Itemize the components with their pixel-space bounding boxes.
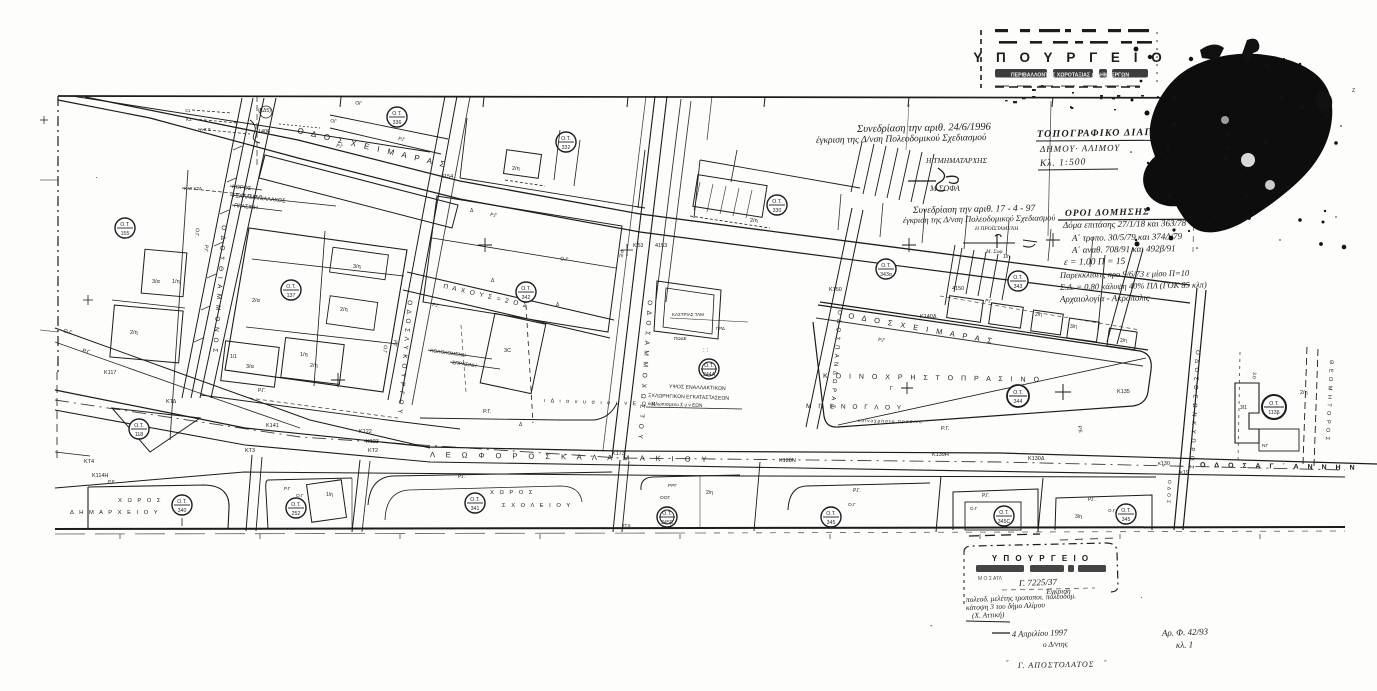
svg-text:Ξ1: Ξ1 [185,108,191,113]
svg-text:ΚΙ53: ΚΙ53 [633,243,644,249]
svg-text:ΚΑΣΤΡΙΑΣ ΤΛΜ: ΚΑΣΤΡΙΑΣ ΤΛΜ [672,312,704,317]
svg-text:Ο.Τ.: Ο.Τ. [134,423,144,429]
svg-text:Ο.Τ.: Ο.Τ. [1269,401,1279,407]
svg-text:: :: : : [703,348,708,354]
svg-text:336: 336 [393,120,402,126]
svg-text:344Α: 344Α [703,372,716,378]
svg-text:2/η: 2/η [340,307,348,313]
svg-text:Ο.Γ: Ο.Γ [1108,508,1116,513]
svg-text:Ο.Γ.: Ο.Γ. [193,228,200,237]
svg-text:2/η: 2/η [706,490,713,496]
svg-text:Ρ.Γ: Ρ.Γ [284,486,291,492]
svg-text:Ο.Τ.: Ο.Τ. [521,286,531,292]
svg-text:4 Απριλίου 1997: 4 Απριλίου 1997 [1012,627,1068,639]
svg-text:332: 332 [562,145,571,151]
svg-text:1/η: 1/η [172,279,180,285]
svg-text:Ο.Τ.: Ο.Τ. [704,363,714,369]
svg-text:Κ150: Κ150 [829,287,842,293]
svg-text:Δ Η Μ Α Ρ Χ Ε Ι Ο Υ: Δ Η Μ Α Ρ Χ Ε Ι Ο Υ [70,510,160,516]
svg-text:Ρ.Γ.: Ρ.Γ. [202,245,209,253]
svg-text:Κ173: Κ173 [612,451,625,457]
svg-text:Αρ. Φ. 42/93: Αρ. Φ. 42/93 [1161,626,1209,638]
svg-text:ο Δ/ντης: ο Δ/ντης [1043,639,1069,649]
svg-text:345β: 345β [661,520,673,526]
svg-text:1/η: 1/η [300,352,308,358]
svg-text:Ο.Τ.: Ο.Τ. [1013,390,1023,396]
svg-text:137: 137 [287,293,296,299]
svg-text:(Χ. Αττική): (Χ. Αττική) [972,610,1005,620]
svg-text:ΚΑΤ ΚΤΛ: ΚΑΤ ΚΤΛ [184,186,202,191]
svg-text:ΝΓ: ΝΓ [1262,443,1268,449]
svg-text:1/η: 1/η [1003,254,1010,260]
svg-text:Ο Δ Ο Σ: Ο Δ Ο Σ [1165,480,1172,504]
svg-text:Ρ.Γ.: Ρ.Γ. [853,488,861,494]
svg-text:Ρ.Γ: Ρ.Γ [490,212,498,219]
svg-text:3/α: 3/α [246,364,255,370]
svg-text:Κ130Δ: Κ130Δ [1028,456,1045,462]
svg-text:Γ: Γ [890,386,893,392]
svg-text:Κλ. 1:500: Κλ. 1:500 [1039,157,1087,169]
svg-text:κλ. 1: κλ. 1 [1176,639,1194,650]
svg-text:3.0: 3.0 [1251,372,1257,379]
svg-text:Κ139Η: Κ139Η [932,452,949,458]
svg-text:330: 330 [773,208,782,214]
svg-text:κ130: κ130 [1158,461,1170,467]
svg-text:Ο.Τ.: Ο.Τ. [1013,275,1023,281]
svg-text:2/η: 2/η [512,166,520,172]
svg-text:Χ Ω Ρ Ο Σ: Χ Ω Ρ Ο Σ [118,498,163,504]
svg-text:ΚΤ3: ΚΤ3 [245,448,255,454]
svg-text:Ο.Τ.: Ο.Τ. [470,497,480,503]
svg-text:ΚΤΔ: ΚΤΔ [166,399,177,405]
svg-text:Η ΠΡΟΪΣΤΑΜΕΝΗ: Η ΠΡΟΪΣΤΑΜΕΝΗ [974,225,1019,232]
svg-text:2/α: 2/α [252,298,261,304]
svg-text:345: 345 [1122,517,1131,523]
svg-text:Κ117: Κ117 [104,370,116,376]
svg-text:ΟΟΓ: ΟΟΓ [660,495,670,501]
svg-text:Ο.Τ.: Ο.Τ. [120,222,130,228]
svg-text:2Τ.5: 2Τ.5 [622,523,631,528]
svg-text:ΚΣ: ΚΣ [186,117,192,122]
svg-text:343: 343 [1014,284,1023,290]
svg-text:343α: 343α [880,272,892,278]
svg-text:Α΄ αναθ. 708/91 και 492β/91: Α΄ αναθ. 708/91 και 492β/91 [1071,243,1176,255]
svg-text:Μ ΣΟΦΑ: Μ ΣΟΦΑ [929,184,960,193]
svg-text:Κ135: Κ135 [1117,389,1130,395]
svg-text:Υ Π Ο Υ Ρ Γ Ε Ι Ο: Υ Π Ο Υ Ρ Γ Ε Ι Ο [973,50,1166,65]
svg-text:Ο.Τ.: Ο.Τ. [826,511,836,517]
svg-text:Ρ.Γ.: Ρ.Γ. [982,493,990,499]
svg-text:Ρ.Γ.: Ρ.Γ. [258,388,266,394]
svg-text:·: · [95,173,98,182]
svg-text:Κ114Η: Κ114Η [92,473,108,479]
svg-text:3C: 3C [504,348,511,354]
svg-text:Ο.Τ.: Ο.Τ. [291,502,301,508]
svg-text:2/η: 2/η [310,363,318,369]
svg-text:ΚΤ4: ΚΤ4 [84,459,94,465]
svg-text:ΠΡΔ: ΠΡΔ [716,326,725,331]
svg-text:Ρ.Γ.: Ρ.Γ. [1088,497,1096,503]
svg-text:Ο.Τ.: Ο.Τ. [999,510,1009,516]
svg-text:Κ141: Κ141 [266,423,279,429]
svg-text:345C: 345C [998,519,1011,525]
svg-text:1406: 1406 [258,129,270,135]
svg-text:155: 155 [121,231,130,237]
svg-text:Ο.Τ.: Ο.Τ. [561,136,571,142]
svg-text:Κ128Ν: Κ128Ν [779,458,796,464]
svg-text:345: 345 [827,520,836,526]
svg-text:118: 118 [135,432,143,438]
svg-text:Ζ: Ζ [1352,88,1355,94]
svg-text:341: 341 [471,506,480,512]
svg-text:ΠΕΡΙΒΑΛΛΟΝΤΟΣ ΧΩΡΟΤΑΞΙΑΣ & ΔΗΜ: ΠΕΡΙΒΑΛΛΟΝΤΟΣ ΧΩΡΟΤΑΞΙΑΣ & ΔΗΜ. ΕΡΓΩΝ [1011,73,1129,79]
svg-text:Γ. ΑΠΟΣΤΟΛΑΤΟΣ: Γ. ΑΠΟΣΤΟΛΑΤΟΣ [1017,660,1095,670]
svg-text:Ο.Τ.: Ο.Τ. [881,263,891,269]
svg-text:Ο.Τ.: Ο.Τ. [177,499,187,505]
svg-text:ΟΡΟΙ ΔΟΜΗΣΗΣ: ΟΡΟΙ ΔΟΜΗΣΗΣ [1065,208,1150,219]
svg-text:3/η: 3/η [1075,514,1082,520]
svg-text:ε = 1.00 Π = 15: ε = 1.00 Π = 15 [1064,257,1126,268]
svg-text:Κ140Δ: Κ140Δ [920,314,937,320]
svg-text:Μ. Σοφ: Μ. Σοφ [985,249,1002,255]
svg-text:2/η: 2/η [750,218,758,224]
svg-text:Ρ.Γ.: Ρ.Γ. [458,474,466,480]
svg-text:Α΄ τροπο. 30/5/79 και 374Δ/: Α΄ τροπο. 30/5/79 και 374Δ/79 [1071,231,1183,243]
svg-text:4154: 4154 [441,174,453,180]
svg-text:Ρ.Γ.: Ρ.Γ. [985,298,993,305]
svg-text:Υ Π Ο Υ Ρ Γ Ε Ι Ο: Υ Π Ο Υ Ρ Γ Ε Ι Ο [992,554,1090,563]
svg-text:Ο.Τ.: Ο.Τ. [392,111,402,117]
svg-text:Ο.Γ: Ο.Γ [848,502,856,508]
svg-text:Ο.Γ: Ο.Γ [970,506,978,511]
svg-text:252: 252 [292,511,301,517]
svg-text:113β: 113β [1268,410,1279,416]
svg-text:3Ι1: 3Ι1 [1240,405,1247,411]
svg-text:Η ΤΜΗΜΑΤΑΡΧΗΣ: Η ΤΜΗΜΑΤΑΡΧΗΣ [925,156,987,165]
svg-text:342: 342 [522,295,531,301]
svg-text:ΠΩΔΕ: ΠΩΔΕ [674,336,687,341]
svg-text:Ρ.Γ: Ρ.Γ [878,337,886,344]
svg-text:-: - [930,621,933,630]
svg-text:3/η: 3/η [1070,324,1077,330]
svg-text:Ρ.Ε: Ρ.Ε [1076,425,1083,433]
svg-text:2/η: 2/η [130,330,138,336]
svg-text:340: 340 [178,508,187,514]
svg-text:Ο.Γ: Ο.Γ [381,345,388,354]
svg-text:Σ Χ Ο Λ Ε Ι Ο Υ: Σ Χ Ο Λ Ε Ι Ο Υ [502,503,572,509]
svg-text:3/η: 3/η [353,264,361,270]
svg-text:Ρ.Γ.: Ρ.Γ. [941,426,950,432]
svg-text:Ο.Τ.: Ο.Τ. [772,199,782,205]
svg-text:·: · [1140,593,1143,602]
svg-text:1/η: 1/η [326,492,333,498]
svg-text:Ο.Τ.: Ο.Τ. [1121,508,1131,514]
svg-text:3/α: 3/α [152,279,161,285]
svg-text:κ19: κ19 [1180,470,1189,476]
svg-text:Αρχαιολογία - Ακρόπολις: Αρχαιολογία - Ακρόπολις [1059,292,1150,304]
svg-text:ΡΡΓ: ΡΡΓ [668,483,677,489]
svg-text:Ο.Τ.: Ο.Τ. [662,511,672,517]
svg-text:2/η: 2/η [1120,338,1127,344]
svg-text:ΚΤ2: ΚΤ2 [368,448,378,454]
svg-text:4153: 4153 [655,243,667,249]
svg-text:Ρ.Γ.: Ρ.Γ. [483,409,492,415]
svg-text:ΔΗΜΟΥ· ΑΛΙΜΟΥ: ΔΗΜΟΥ· ΑΛΙΜΟΥ [1039,143,1120,154]
svg-text:Ρ.Ε: Ρ.Ε [108,479,115,485]
svg-text:Κ123: Κ123 [366,439,379,445]
svg-text:2/η: 2/η [1300,390,1308,396]
svg-text:Μ Ο Σ ΑΤΛ: Μ Ο Σ ΑΤΛ [978,576,1003,582]
svg-text:1/1: 1/1 [230,354,237,360]
svg-text:Χ Ω Ρ Ο Σ: Χ Ω Ρ Ο Σ [490,490,535,496]
svg-text:344: 344 [1014,399,1023,405]
svg-text:Ο.Τ.: Ο.Τ. [286,284,296,290]
